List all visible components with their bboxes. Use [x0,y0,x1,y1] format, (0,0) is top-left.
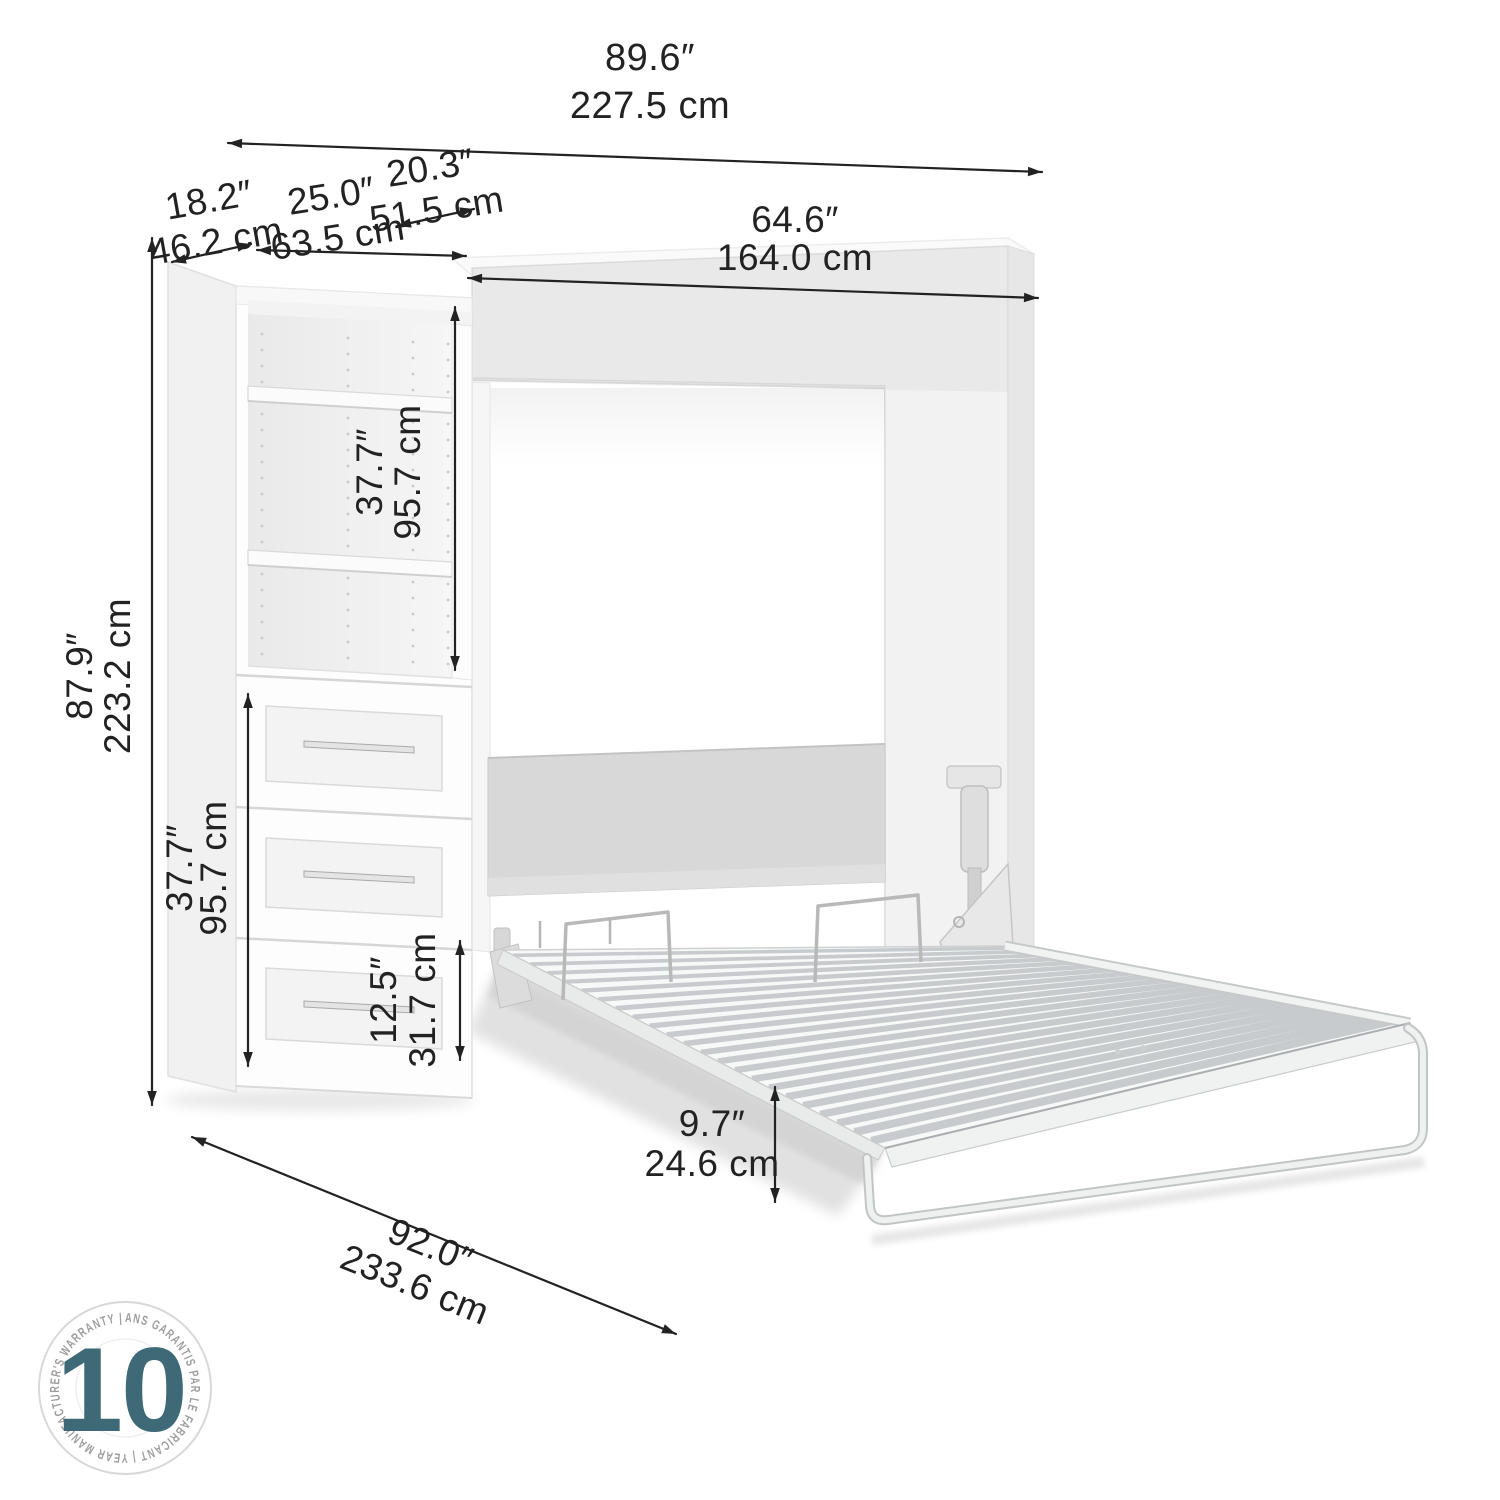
dimension-arrowhead [147,1091,157,1105]
dim-opening-width-in: 64.6″ [751,199,839,240]
shelf-pin-hole [412,613,415,616]
dim-clearance-in: 9.7″ [679,1103,746,1144]
shelf-pin-hole [261,333,264,336]
shelf-pin-hole [261,493,264,496]
piston-cylinder [961,786,988,872]
shelf-pin-hole [447,423,450,426]
shelf-pin-hole [347,609,350,612]
dim-shelf-section-in: 37.7″ [349,428,390,516]
shelf-pin-hole [447,487,450,490]
shelf-pin-hole [261,637,264,640]
shelf-pin-hole [447,519,450,522]
shelf-pin-hole [347,545,350,548]
shelf-pin-hole [261,605,264,608]
diagram-svg: 89.6″ 227.5 cm 64.6″ 164.0 cm 20.3″ 51.5… [0,0,1500,1500]
shelf-pin-hole [412,389,415,392]
shelf-pin-hole [412,581,415,584]
shelf-pin-hole [347,529,350,532]
shelf-pin-hole [261,525,264,528]
shelf-pin-hole [261,413,264,416]
dim-overall-height-in: 87.9″ [59,632,100,720]
shelf-pin-hole [412,373,415,376]
shelf-pin-hole [412,549,415,552]
shelf-pin-hole [347,577,350,580]
shelf-pin-hole [447,503,450,506]
dimension-overall-width: 89.6″ 227.5 cm [228,37,1042,176]
murphy-bed-illustration [165,238,1424,1240]
shelf-pin-hole [412,645,415,648]
dim-clearance-cm: 24.6 cm [644,1143,779,1184]
cabinet-right-outer-face [1008,246,1034,1008]
shelf-pin-hole [447,375,450,378]
shelf-pin-hole [447,391,450,394]
dimension-arrowhead [770,1188,780,1202]
wall-shadow-under-header [472,388,885,466]
dimension-arrowhead [661,1324,676,1334]
shelf-pin-hole [412,597,415,600]
shelf-pin-hole [347,641,350,644]
shelf-pin-hole [447,647,450,650]
shelf-pin-hole [261,429,264,432]
shelf-pin-hole [412,357,415,360]
deck-screw [1140,1045,1146,1051]
shelf-pin-hole [447,535,450,538]
shelf-pin-hole [261,589,264,592]
shelf-pin-hole [261,653,264,656]
dim-bottom-drawer-cm: 31.7 cm [402,932,443,1067]
bookcase-side-panel [168,262,236,1092]
shelf-pin-hole [347,625,350,628]
shelf-pin-hole [347,417,350,420]
shelf-pin-hole [447,343,450,346]
dim-shelf-section-cm: 95.7 cm [387,404,428,539]
cabinet-left-strip [472,382,490,952]
shelf-pin-hole [447,359,450,362]
dim-overall-width-cm: 227.5 cm [570,85,730,127]
drawer-2 [266,838,442,917]
dimension-side-depth: 18.2″ 46.2 cm [139,168,286,273]
shelf-pin-hole [261,365,264,368]
shelf-pin-hole [447,663,450,666]
shelf-pin-hole [347,353,350,356]
shelf-pin-hole [447,599,450,602]
shelf-pin-hole [261,541,264,544]
shelf-pin-hole [447,551,450,554]
shelf-pin-hole [347,337,350,340]
dimension-arrowhead [192,1137,207,1147]
shelf-pin-hole [447,439,450,442]
warranty-years: 10 [56,1323,185,1457]
dimension-arrowhead [228,139,242,149]
dim-drawer-section-cm: 95.7 cm [193,800,234,935]
dimension-total-depth-open: 92.0″ 233.6 cm [192,1137,676,1334]
product-dimension-diagram: 89.6″ 227.5 cm 64.6″ 164.0 cm 20.3″ 51.5… [0,0,1500,1500]
shelf-pin-hole [261,349,264,352]
shelf-pin-hole [261,445,264,448]
shelf-pin-hole [447,583,450,586]
shelf-pin-hole [261,573,264,576]
shelf-pin-hole [412,661,415,664]
dim-overall-width-in: 89.6″ [605,37,695,79]
drawer-1 [266,706,442,791]
legbar-floor-shadow [872,1162,1424,1240]
shelf-pin-hole [447,615,450,618]
shelf-pin-hole [261,477,264,480]
headboard-panel [488,744,885,896]
shelf-pin-hole [447,471,450,474]
shelf-pin-hole [347,657,350,660]
dim-shelf-width-cm: 63.5 cm [268,206,408,268]
dimension-overall-height: 87.9″ 223.2 cm [59,238,157,1105]
shelf-pin-hole [447,631,450,634]
dim-opening-width-cm: 164.0 cm [717,237,873,278]
shelf-pin-hole [261,381,264,384]
shelf-pin-hole [412,629,415,632]
shelf-pin-hole [412,341,415,344]
shelf-pin-hole [347,369,350,372]
shelf-pin-hole [261,509,264,512]
shelf-pin-hole [261,461,264,464]
dimension-arrowhead [1028,167,1042,177]
shelf-pin-hole [347,385,350,388]
warranty-badge: ANS GARANTIS PAR LE FABRICANT | YEAR MAN… [39,1302,211,1474]
shelf-pin-hole [261,621,264,624]
dim-bottom-drawer-in: 12.5″ [363,956,404,1044]
piston-mount [947,766,1001,788]
shelf-pin-hole [447,455,450,458]
dim-overall-height-cm: 223.2 cm [97,598,138,754]
deck-screw [1115,1049,1121,1055]
shelf-pin-hole [347,593,350,596]
